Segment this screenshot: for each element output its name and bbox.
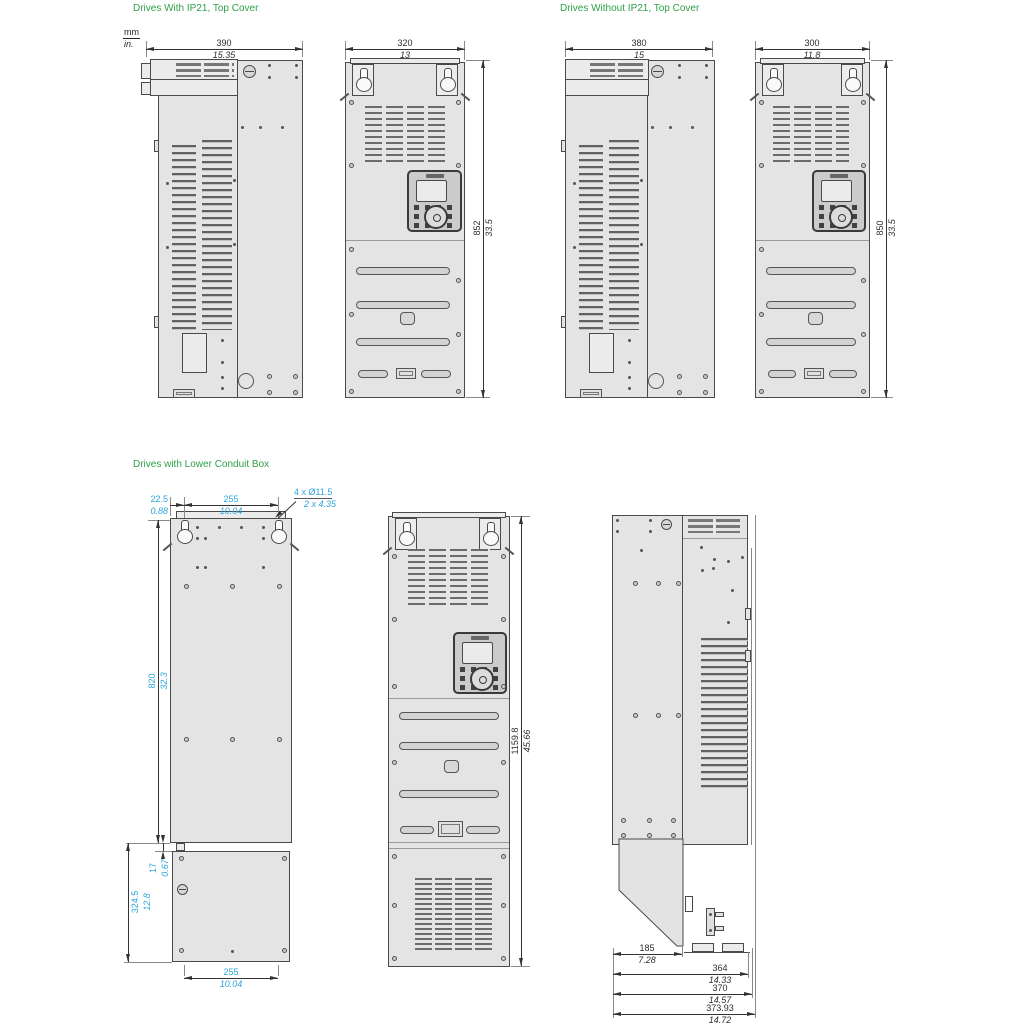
dot [262, 526, 265, 529]
dot [649, 519, 652, 522]
dot [295, 64, 298, 67]
keypad-display [453, 632, 507, 694]
arrow [156, 835, 160, 843]
screw-dot [456, 278, 461, 283]
keyhole-slot [845, 68, 859, 90]
dim-in: 2 x 4.35 [304, 499, 336, 510]
dot [233, 179, 236, 182]
screw-dot [656, 581, 661, 586]
screw-dot [759, 312, 764, 317]
dim-mm: 4 x Ø11.5 [294, 487, 332, 499]
dim-mm: 852 [472, 220, 482, 235]
screw-dot [293, 390, 298, 395]
bracket-prong [715, 912, 724, 917]
screw-dot [392, 554, 397, 559]
mounting-holes-note: 4 x Ø11.5 2 x 4.35 [294, 487, 336, 510]
dim-side-width-ip21: 390 15.35 [199, 38, 249, 60]
hinge [561, 316, 566, 328]
arrow [156, 520, 160, 528]
screw-dot [184, 737, 189, 742]
base-line [684, 952, 750, 953]
screw-dot [392, 617, 397, 622]
dot [713, 558, 716, 561]
slot [400, 826, 434, 834]
arrow [457, 47, 465, 51]
knockout-square [444, 760, 459, 773]
connector [804, 368, 824, 379]
dim-depth-total: 373.93 14.72 [695, 1003, 745, 1025]
dot [649, 530, 652, 533]
slot [421, 370, 451, 378]
circle-knockout [648, 373, 664, 389]
screw-dot [392, 760, 397, 765]
seam-line [389, 698, 509, 699]
keypad-display [812, 170, 866, 232]
circle-knockout [238, 373, 254, 389]
screw-dot [861, 100, 866, 105]
screw-dot [759, 389, 764, 394]
dot [712, 567, 715, 570]
screw-dot [633, 581, 638, 586]
dot [669, 126, 672, 129]
dot [262, 566, 265, 569]
dim-conduit-height: 324.5 12.8 [130, 877, 152, 927]
dot [616, 519, 619, 522]
arrow [519, 516, 523, 524]
hinge [561, 140, 566, 152]
dot [204, 566, 207, 569]
dot [221, 387, 224, 390]
screw-dot [282, 856, 287, 861]
keypad-wheel [829, 205, 853, 229]
screw-dot [267, 374, 272, 379]
dot [221, 376, 224, 379]
screw-dot [501, 956, 506, 961]
keyhole-slot [766, 68, 780, 90]
hinge [154, 316, 159, 328]
vent [176, 63, 234, 77]
screw-dot [676, 713, 681, 718]
dot [166, 246, 169, 249]
vent-grille [365, 106, 445, 162]
ext-line [871, 397, 893, 398]
vent-grille [773, 106, 849, 162]
dim-in: 15.35 [213, 50, 236, 60]
dim-mm: 324.5 [130, 891, 140, 914]
keyhole-slot [440, 68, 454, 90]
screw-dot [861, 389, 866, 394]
dot [240, 526, 243, 529]
screw-dot [861, 278, 866, 283]
arrow [747, 1012, 755, 1016]
keyhole-slot [356, 68, 370, 90]
panel [237, 60, 303, 398]
arrow [126, 843, 130, 851]
arrow [295, 47, 303, 51]
screw-dot [759, 100, 764, 105]
dim-in: 7.28 [638, 955, 656, 965]
door-edge [751, 548, 752, 845]
dot [727, 560, 730, 563]
seam-line [756, 240, 869, 241]
dot [233, 243, 236, 246]
arrow [744, 992, 752, 996]
dim-body-height: 820 32.3 [147, 656, 169, 706]
dot [705, 64, 708, 67]
dot [709, 929, 712, 932]
dot [727, 621, 730, 624]
screw-dot [501, 854, 506, 859]
section-title-without-ip21: Drives Without IP21, Top Cover [560, 3, 699, 14]
conduit-vent-grille [415, 878, 495, 950]
dim-in: 10.04 [220, 979, 243, 989]
ext-line [466, 60, 490, 61]
dim-in: 11.8 [804, 50, 821, 60]
vent-louvers [701, 638, 748, 792]
seam-line [683, 538, 747, 539]
screw-dot [703, 374, 708, 379]
dot [616, 530, 619, 533]
slot [766, 338, 856, 346]
dim-depth-body: 364 14.33 [695, 963, 745, 985]
slot [766, 267, 856, 275]
vent-grille [408, 549, 490, 607]
panel [647, 60, 715, 398]
dim-in: 33.5 [484, 219, 494, 237]
dot [196, 526, 199, 529]
dot [221, 339, 224, 342]
dot [628, 387, 631, 390]
dim-mm: 255 [223, 967, 238, 977]
screw-dot [392, 684, 397, 689]
knockout-square [808, 312, 823, 325]
dim-in: 0.67 [160, 859, 170, 877]
arrow [755, 47, 763, 51]
arrow [481, 60, 485, 68]
screw-dot [456, 332, 461, 337]
dot [262, 537, 265, 540]
screw-dot [677, 390, 682, 395]
dim-mm: 390 [216, 38, 231, 48]
units-mm: mm [123, 27, 140, 39]
arrow [126, 954, 130, 962]
slot [399, 712, 499, 720]
dim-conduit-depth: 185 7.28 [622, 943, 672, 965]
screw-dot [349, 312, 354, 317]
dot [741, 556, 744, 559]
section-title-with-ip21: Drives With IP21, Top Cover [133, 3, 258, 14]
screw-dot [277, 737, 282, 742]
foot-pad [722, 943, 744, 952]
dim-mm: 850 [875, 220, 885, 235]
dim-mm: 320 [397, 38, 412, 48]
dim-mm: 185 [639, 943, 654, 953]
arrow [862, 47, 870, 51]
dot [295, 76, 298, 79]
connector [580, 389, 602, 398]
slot [766, 301, 856, 309]
ext-line [466, 397, 490, 398]
dot [231, 950, 234, 953]
screw-dot [456, 100, 461, 105]
arrow [884, 60, 888, 68]
dim-height-no-ip21: 850 33.5 [875, 203, 897, 253]
screw-dot [759, 163, 764, 168]
screw-dot [282, 948, 287, 953]
screw-dot [277, 584, 282, 589]
cover-lip [141, 63, 151, 79]
dim-mm: 380 [631, 38, 646, 48]
ext-line [278, 965, 279, 976]
screw-dot [230, 737, 235, 742]
panel [612, 515, 683, 845]
ext-line [184, 497, 185, 518]
screw-dot [656, 713, 661, 718]
dot [218, 526, 221, 529]
dim-mm: 1159.8 [510, 728, 520, 755]
units-in: in. [123, 39, 140, 50]
screw-dot [861, 163, 866, 168]
seam-line [389, 848, 509, 849]
screw-dot [621, 818, 626, 823]
screw-dot [861, 332, 866, 337]
conduit-box [172, 851, 290, 962]
dot [268, 76, 271, 79]
ext-line [682, 946, 683, 957]
dim-in: 15 [634, 50, 644, 60]
screw [651, 65, 664, 78]
screw-dot [293, 374, 298, 379]
ext-line [748, 952, 749, 978]
dot [678, 76, 681, 79]
head-strip [565, 79, 649, 96]
screw-dot [671, 818, 676, 823]
dim-front-width-no-ip21: 300 11.8 [787, 38, 837, 60]
slot [358, 370, 388, 378]
ext-line [124, 962, 172, 963]
screw-dot [677, 374, 682, 379]
dot [651, 126, 654, 129]
dim-mm: 364 [712, 963, 727, 973]
slot [768, 370, 796, 378]
screw-dot [392, 956, 397, 961]
arrow [481, 390, 485, 398]
hinge [745, 608, 751, 620]
conduit-cover [618, 838, 684, 948]
ext-line [184, 965, 185, 976]
dot [166, 182, 169, 185]
slot [356, 301, 450, 309]
vent-louvers [609, 140, 639, 330]
dot [221, 361, 224, 364]
screw-dot [501, 903, 506, 908]
slot [829, 370, 857, 378]
keyhole-slot [399, 522, 413, 544]
arrow [884, 390, 888, 398]
brand-logo [471, 636, 489, 640]
arrow [613, 992, 621, 996]
screw [177, 884, 188, 895]
screw-dot [759, 247, 764, 252]
seam-line [346, 240, 464, 241]
screw-dot [230, 584, 235, 589]
screw-dot [392, 903, 397, 908]
keypad-wheel [424, 205, 448, 229]
dot [281, 126, 284, 129]
arrow [270, 503, 278, 507]
screw-dot [456, 163, 461, 168]
arrow [345, 47, 353, 51]
dot [573, 182, 576, 185]
screw-dot [349, 100, 354, 105]
dim-line [128, 843, 129, 962]
ext-line [511, 966, 530, 967]
screw-dot [647, 818, 652, 823]
dim-mm: 22.5 [150, 494, 168, 504]
screw-dot [501, 684, 506, 689]
foot-pad [692, 943, 714, 952]
slot [356, 267, 450, 275]
screw-dot [179, 948, 184, 953]
vent-louvers [579, 145, 603, 330]
dot [709, 913, 712, 916]
dim-hole-spacing-top: 255 10.04 [206, 494, 256, 516]
page: { "page": { "units_mm": "mm", "units_in"… [0, 0, 1024, 1024]
dot [731, 589, 734, 592]
screw-dot [633, 713, 638, 718]
keyhole-slot [271, 520, 285, 542]
arrow [184, 503, 192, 507]
arrow [705, 47, 713, 51]
screw-dot [501, 554, 506, 559]
dim-height-ip21: 852 33.5 [472, 203, 494, 253]
screw [661, 519, 672, 530]
dim-edge-offset: 22.5 0.88 [134, 494, 168, 516]
keypad-screen [821, 180, 852, 202]
keypad-screen [416, 180, 447, 202]
screw [243, 65, 256, 78]
ext-line [613, 948, 614, 1018]
vent-louvers [172, 145, 196, 330]
keypad-wheel [470, 667, 494, 691]
ip21-top-cover [150, 79, 238, 96]
gap-tab [176, 843, 185, 851]
dot [204, 537, 207, 540]
dot [241, 126, 244, 129]
screw-dot [501, 617, 506, 622]
arrow [613, 972, 621, 976]
dim-mm: 370 [712, 983, 727, 993]
hinge [745, 650, 751, 662]
bracket-prong [715, 926, 724, 931]
screw-dot [349, 389, 354, 394]
ext-line [170, 497, 171, 516]
dot [196, 566, 199, 569]
dim-in: 10.04 [220, 506, 243, 516]
dot [196, 537, 199, 540]
vent-louvers [202, 140, 232, 330]
dot [628, 361, 631, 364]
keyhole-slot [483, 522, 497, 544]
dim-in: 32.3 [159, 672, 169, 690]
screw-dot [392, 854, 397, 859]
dim-in: 0.88 [150, 506, 168, 516]
screw-dot [184, 584, 189, 589]
dim-depth-door: 370 14.57 [695, 983, 745, 1005]
arrow [270, 976, 278, 980]
dim-in: 13 [400, 50, 410, 60]
arrow [184, 976, 192, 980]
dim-side-width-no-ip21: 380 15 [614, 38, 664, 60]
knockout-square [400, 312, 415, 325]
cover-lip [141, 82, 151, 95]
dot [259, 126, 262, 129]
screw-dot [179, 856, 184, 861]
screw-dot [501, 760, 506, 765]
arrow [613, 1012, 621, 1016]
dot [705, 76, 708, 79]
vent [688, 519, 740, 533]
connector [438, 821, 463, 837]
drive-rear-body [170, 518, 292, 843]
connector [396, 368, 416, 379]
dot [640, 179, 643, 182]
arrow [674, 952, 682, 956]
arrow [176, 503, 184, 507]
dot [268, 64, 271, 67]
keypad-screen [462, 642, 493, 664]
vent [590, 63, 645, 77]
ext-line [755, 515, 756, 1018]
dot [628, 339, 631, 342]
dot [701, 569, 704, 572]
screw-dot [703, 390, 708, 395]
dim-mm: 300 [804, 38, 819, 48]
arrow [161, 835, 165, 843]
screw-dot [456, 389, 461, 394]
label-plate [182, 333, 207, 373]
ext-line [871, 60, 893, 61]
dot [678, 64, 681, 67]
dot [691, 126, 694, 129]
arrow [565, 47, 573, 51]
dim-front-width-ip21: 320 13 [380, 38, 430, 60]
slot [399, 742, 499, 750]
dim-mm: 17 [148, 863, 158, 873]
screw-dot [676, 581, 681, 586]
connector [173, 389, 195, 398]
dim-in: 33.5 [887, 219, 897, 237]
seam-line [389, 842, 509, 843]
bracket-hook [685, 896, 693, 912]
screw-dot [267, 390, 272, 395]
dot [628, 376, 631, 379]
dim-mm: 820 [147, 673, 157, 688]
arrow [519, 958, 523, 966]
dim-in: 12.8 [142, 893, 152, 911]
dot [573, 246, 576, 249]
hinge [154, 140, 159, 152]
dim-in: 45.66 [522, 730, 532, 753]
arrow [146, 47, 154, 51]
section-title-lower-conduit: Drives with Lower Conduit Box [133, 459, 269, 470]
slot [399, 790, 499, 798]
slot [356, 338, 450, 346]
screw-dot [349, 163, 354, 168]
dim-hole-spacing-bottom: 255 10.04 [206, 967, 256, 989]
keypad-display [407, 170, 462, 232]
dim-mm: 373.93 [706, 1003, 734, 1013]
